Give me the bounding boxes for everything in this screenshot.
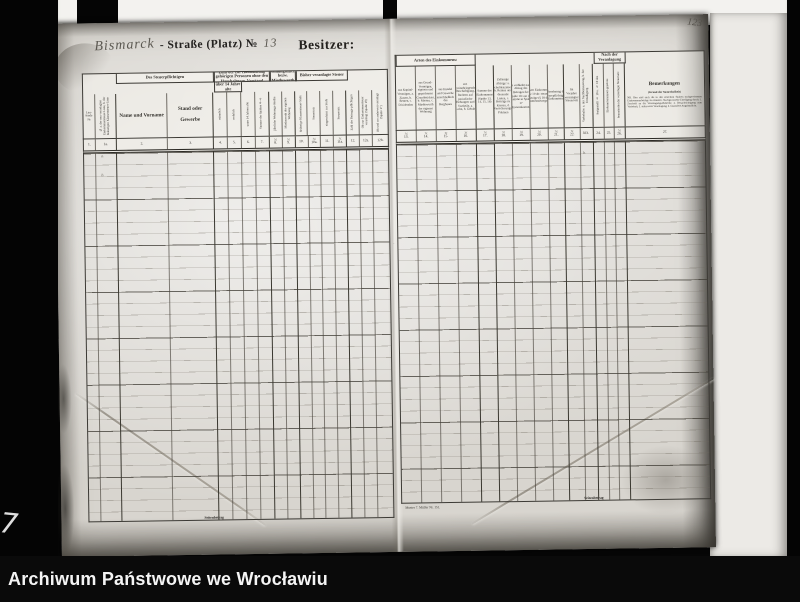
column-header: Name und Vorname <box>116 93 168 138</box>
column-header-label: № a. der neu veranlagten Einkommensteuer… <box>100 95 112 137</box>
column-number: ℳ9. <box>282 136 295 147</box>
column-number: ℳ18. <box>495 129 513 140</box>
column-header-label: eingeschätzt zur Stufe <box>325 99 329 126</box>
pencil-mark: · <box>393 241 394 246</box>
edge-smudge <box>56 464 75 554</box>
column-header: Im Vorjahre veranlagter Steuersatz <box>564 64 581 127</box>
column-header: aus Kapital-Vermögen, a. Zinsen, b. Rent… <box>396 67 417 130</box>
column-header-note: NB. Hier sind auch die in den einzelnen … <box>625 94 704 110</box>
column-header-label: unter 14 Jahren alte <box>246 102 250 126</box>
column-header: Miethswerth der eigenen Wohnung <box>282 91 296 135</box>
owner-label: Besitzer: <box>298 36 355 53</box>
corner-mark-handwritten: 7 <box>0 509 19 539</box>
column-header: aus Handel und Gewerbe einschließlich de… <box>436 66 457 129</box>
column-number: 4. <box>214 137 228 148</box>
column-header-label: Im Vorjahre veranlagter Steuersatz <box>565 88 579 103</box>
column-number: ℳ26. <box>614 127 625 138</box>
column-number: 7. <box>256 137 270 148</box>
right-page-table: aus Kapital-Vermögen, a. Zinsen, b. Rent… <box>395 50 712 510</box>
column-header-label: Jahresbetrag des steuerpflichtigen Einko… <box>548 90 565 101</box>
column-header-label: Einkommensteuer-gesetzes <box>606 78 610 112</box>
page-total-label: Seitenbetrag <box>584 496 603 500</box>
column-header: Zulässige Abzüge: a. Schuldenzinsen, b. … <box>494 65 513 128</box>
column-header: weiblich <box>227 92 242 136</box>
column-number: 1. <box>84 139 96 150</box>
column-header-label: beanstandet der veranlagte Steuersatz <box>617 72 621 119</box>
column-number: 6. <box>242 137 256 148</box>
column-header-label: Name und Vorname <box>119 110 164 122</box>
column-group-label: über 14 Jahre alte <box>214 82 242 92</box>
pencil-mark: b. <box>583 130 586 135</box>
pencil-mark: b. <box>101 172 104 177</box>
column-number: ℳ17. <box>476 129 495 140</box>
column-header-label: Vorbehalte: a. der Nachbesteuerung, b. d… <box>582 65 590 126</box>
column-number: 1a. <box>96 139 117 150</box>
column-header: Stand oder Gewerbe <box>168 93 214 138</box>
column-header-label: Es verbleibt nach Abzug des Betrages der… <box>512 84 531 110</box>
column-header: Steuersatz <box>333 91 347 135</box>
column-number: 12. <box>347 135 360 146</box>
body-column <box>168 152 219 521</box>
column-number: ℳ21. <box>549 128 565 139</box>
column-header: Summe der Spalten 4—6 <box>255 92 270 136</box>
pencil-mark: b. <box>583 150 586 155</box>
column-header: Ob zur Einkommensteuer veranlagt (Spalte… <box>359 90 373 134</box>
black-frame-right <box>787 0 800 602</box>
column-number: ℳ19. <box>513 129 531 140</box>
column-number: 12a. <box>360 135 373 146</box>
column-header-label: Summe der Spalten 4—6 <box>260 98 264 129</box>
body-column <box>625 140 710 499</box>
column-number: ℳ16. <box>456 130 476 141</box>
column-header: Ob und wo anderweit veranlagt (Spalte 17… <box>372 90 388 134</box>
column-header: jährliche Wohnungs-miethe <box>269 92 283 136</box>
column-header-label: Miethswerth der eigenen Wohnung <box>284 92 292 134</box>
column-group-label: Nach der Veranlagung <box>594 52 626 63</box>
column-header-label: jährliche Wohnungs-miethe <box>273 97 277 131</box>
column-number: 3. <box>168 138 214 150</box>
column-header-label: Zulässige Abzüge: a. Schuldenzinsen, b. … <box>494 78 513 115</box>
column-header-label: Von dem Einkommen der Spalte 19 ab: steu… <box>530 89 549 104</box>
column-header: Es verbleibt nach Abzug des Betrages der… <box>512 65 531 128</box>
column-header-label: Stand oder Gewerbe <box>168 104 212 126</box>
column-header: Jahresbetrag des steuerpflichtigen Einko… <box>548 64 565 127</box>
column-number: 12b. <box>373 135 388 146</box>
ledger-sheet: Bismarck - Straße (Platz) № 13 Besitzer:… <box>54 14 716 557</box>
column-header: bisherige Klassensteuer-Stufe <box>295 91 309 135</box>
pencil-mark: · <box>389 144 390 149</box>
header-cells-row: Lau- fende №№ a. der neu veranlagten Ein… <box>83 90 388 139</box>
column-group-label: Arten des Einkommens: <box>396 55 476 67</box>
column-header: unter 14 Jahren alte <box>241 92 256 136</box>
column-header-label: Summe des Einkommens (Spalte 13, 14, 15,… <box>476 90 493 105</box>
column-header: Bemerkungen(Grund der Steuerfreiheit)NB.… <box>624 62 704 126</box>
column-number: ℳ15. <box>436 130 456 141</box>
left-page-table: Lau- fende №№ a. der neu veranlagten Ein… <box>82 69 395 522</box>
column-number: ℳ13. <box>397 131 417 142</box>
column-group-label: Zahl der zur Haushaltung gehörigen Perso… <box>214 72 270 83</box>
column-header: Von dem Einkommen der Spalte 19 ab: steu… <box>530 65 549 128</box>
column-header-label: Lau- fende № <box>84 111 94 122</box>
pencil-mark: · <box>391 331 392 336</box>
column-header-label: aus Grund-Vermögen, eigenen und gepachte… <box>416 81 435 114</box>
column-number: 2. <box>117 138 169 150</box>
column-header-label: festgestellt § 18 u. § 19 des <box>596 76 600 115</box>
column-header: № a. der neu veranlagten Einkommensteuer… <box>95 94 117 138</box>
column-number: 24. <box>593 128 604 139</box>
column-number: ℳ11a. <box>334 136 347 147</box>
column-header-label: aus gewinnbringender Beschäftigung, Rech… <box>455 83 476 112</box>
column-header-label: Bemerkungen <box>649 79 680 90</box>
column-header: aus gewinnbringender Beschäftigung, Rech… <box>455 66 476 129</box>
column-header: aus Grund-Vermögen, eigenen und gepachte… <box>416 66 437 129</box>
column-header-label: männlich <box>218 109 222 121</box>
column-group-label: Wohnungsmiethe bezw. Miethswerth <box>270 71 296 81</box>
page-number-handwritten: 123 <box>687 16 703 29</box>
column-header-label: bisherige Klassensteuer-Stufe <box>299 95 303 132</box>
pencil-mark: a. <box>101 153 104 158</box>
photo-splice-gap-left <box>77 0 118 25</box>
header-cells-row: aus Kapital-Vermögen, a. Zinsen, b. Rent… <box>396 62 705 130</box>
column-number: 10. <box>295 136 308 147</box>
backdrop-page-right-margin <box>710 13 788 557</box>
column-header-label: Steuersatz <box>312 107 316 120</box>
column-number: 5. <box>228 137 242 148</box>
column-number: ℳ10a. <box>308 136 321 147</box>
column-header: männlich <box>213 92 228 136</box>
column-header: Vorbehalte: a. der Nachbesteuerung, b. d… <box>580 64 594 127</box>
column-header-label: Ob und wo anderweit veranlagt (Spalte 17… <box>376 91 384 133</box>
column-header: eingeschätzt zur Stufe <box>321 91 335 135</box>
column-number: ℳ8. <box>270 137 283 148</box>
page-total-label: Seitenbetrag <box>204 515 223 519</box>
column-header: Zahl der Beitrags-pflichtigen <box>346 90 360 134</box>
column-header-label: weiblich <box>232 109 236 120</box>
archival-scan-stage: Bismarck - Straße (Platz) № 13 Besitzer:… <box>0 0 800 602</box>
street-name-handwritten: Bismarck <box>94 36 155 55</box>
column-number: ℳ22. <box>565 128 581 139</box>
column-header-label: Ob zur Einkommensteuer veranlagt (Spalte… <box>362 91 370 133</box>
page-title-row: Bismarck - Straße (Platz) № 13 <box>94 36 277 61</box>
column-number: ℳ20. <box>531 129 549 140</box>
column-header-label: aus Kapital-Vermögen, a. Zinsen, b. Rent… <box>397 89 415 107</box>
column-number: ℳ14. <box>417 130 437 141</box>
column-number: 27. <box>625 126 705 138</box>
table-body-grid: Seitenbetrag <box>396 140 711 504</box>
column-header-label: Steuersatz <box>338 106 342 119</box>
table-header: aus Kapital-Vermögen, a. Zinsen, b. Rent… <box>395 50 706 130</box>
archive-watermark-bar: Archiwum Państwowe we Wrocławiu <box>0 556 800 602</box>
column-group-label: Bisher veranlagte Steuer <box>296 71 348 82</box>
column-header: Lau- fende № <box>83 94 96 138</box>
column-number: 11. <box>321 136 334 147</box>
street-label-printed: - Straße (Platz) № <box>160 38 258 51</box>
column-header-label: aus Handel und Gewerbe einschließlich de… <box>436 88 454 106</box>
street-number-handwritten: 13 <box>263 35 278 51</box>
column-header: Summe des Einkommens (Spalte 13, 14, 15,… <box>475 65 495 128</box>
table-body-grid: Seitenbetrag <box>83 149 394 522</box>
column-group-label: Des Steuerpflichtigen <box>116 73 214 84</box>
body-column <box>117 152 174 521</box>
column-header-label: Zahl der Beitrags-pflichtigen <box>351 94 355 130</box>
archive-name-label: Archiwum Państwowe we Wrocławiu <box>0 569 328 590</box>
column-header: Steuersatz <box>308 91 322 135</box>
table-header: Lau- fende №№ a. der neu veranlagten Ein… <box>82 69 389 139</box>
column-number: 25. <box>604 128 614 139</box>
